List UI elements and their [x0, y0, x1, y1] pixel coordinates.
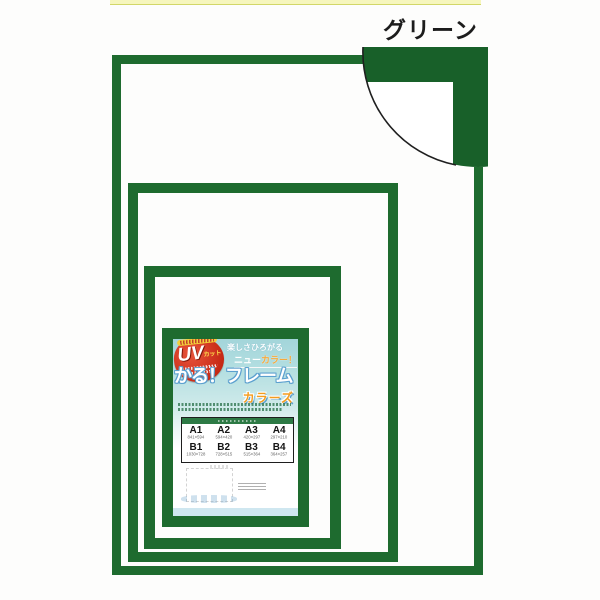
corner-magnifier [352, 46, 488, 176]
poster-footer-strip [173, 508, 298, 516]
size-value: 841×594 [184, 436, 208, 440]
sketch-diagram-detail [210, 465, 228, 469]
catch-copy-line2-colored: カラー！ [261, 355, 297, 365]
size-cell: B1 1030×728 [182, 441, 210, 458]
size-cell: B4 364×257 [265, 441, 293, 458]
top-yellow-strip [110, 0, 481, 5]
size-value: 515×364 [240, 453, 264, 457]
poster-title: かる！フレーム [174, 366, 297, 388]
uv-badge-cut-label: カット [203, 348, 222, 359]
size-table: A1 841×594 A2 594×420 A3 420×297 A4 297×… [181, 417, 294, 463]
size-cell: A4 297×210 [265, 424, 293, 441]
poster-fineprint-line [178, 408, 282, 411]
poster: UV カット 楽しさひろがる ニューカラー！ かる！フレーム カラーズ A1 8… [173, 339, 298, 516]
catch-copy-line2-prefix: ニュー [234, 355, 261, 365]
product-image: グリーン UV カット 楽しさひろがる ニューカラー！ かる！フレーム カラーズ [0, 0, 600, 600]
size-cell: A2 594×420 [210, 424, 238, 441]
size-cell: B3 515×364 [238, 441, 266, 458]
size-value: 364×257 [267, 453, 291, 457]
size-value: 1030×728 [184, 453, 208, 457]
faint-text-block [238, 483, 266, 491]
size-cell: B2 728×515 [210, 441, 238, 458]
size-cell: A1 841×594 [182, 424, 210, 441]
size-table-row-b: B1 1030×728 B2 728×515 B3 515×364 B4 364… [182, 441, 293, 458]
uv-badge-label: UV [176, 344, 204, 366]
size-value: 297×210 [267, 436, 291, 440]
catch-copy-line1: 楽しさひろがる [227, 342, 283, 353]
size-value: 420×297 [240, 436, 264, 440]
signature-scribble [181, 495, 237, 503]
color-name-label: グリーン [383, 11, 478, 45]
magnifier-arc-icon [352, 46, 488, 176]
size-table-row-a: A1 841×594 A2 594×420 A3 420×297 A4 297×… [182, 424, 293, 441]
poster-fineprint-line [178, 403, 291, 406]
size-value: 728×515 [212, 453, 236, 457]
size-value: 594×420 [212, 436, 236, 440]
size-cell: A3 420×297 [238, 424, 266, 441]
